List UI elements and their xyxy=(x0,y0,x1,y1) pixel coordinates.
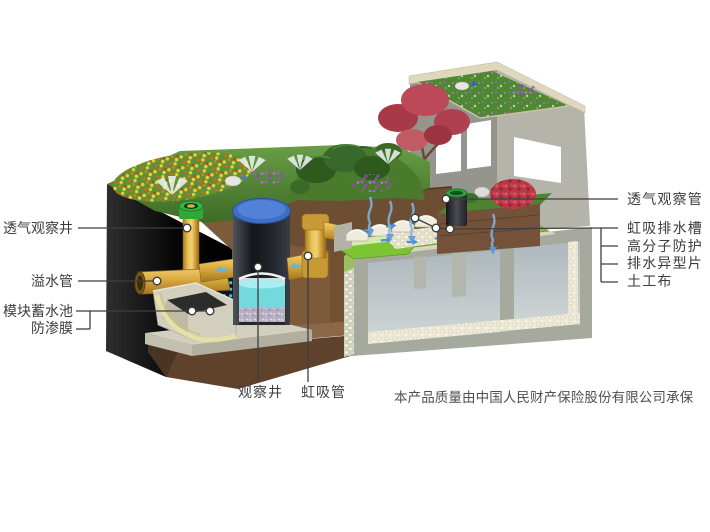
label-vent-observation-well: 透气观察井 xyxy=(3,221,73,236)
vent-observation-pipe-bin xyxy=(446,189,467,226)
observation-well-cylinder xyxy=(233,199,291,326)
label-vent-observation-pipe: 透气观察管 xyxy=(627,192,703,207)
purple-flower-patch xyxy=(351,174,393,192)
label-module-storage-tank: 模块蓄水池 xyxy=(3,304,73,319)
label-polymer-protection: 高分子防护 xyxy=(627,239,703,254)
purple-flower-patch xyxy=(250,168,286,184)
label-siphon-pipe: 虹吸管 xyxy=(300,385,347,400)
system-illustration xyxy=(0,0,710,532)
label-overflow-pipe: 溢水管 xyxy=(3,274,73,289)
insurance-footnote: 本产品质量由中国人民财产保险股份有限公司承保 xyxy=(394,386,693,406)
window-opening xyxy=(467,120,491,169)
label-geotextile: 土工布 xyxy=(627,274,673,289)
garden-rock xyxy=(225,176,241,186)
chamber-stub-column xyxy=(452,252,466,297)
chamber-stub-column xyxy=(414,256,426,289)
roof-rock xyxy=(455,82,469,90)
rainwater-harvesting-diagram: 透气观察井 溢水管 模块蓄水池 防渗膜 透气观察管 虹吸排水槽 高分子防护 排水… xyxy=(0,0,710,532)
label-drainage-profiled-sheet: 排水异型片 xyxy=(627,256,703,271)
well-cut-window xyxy=(239,274,285,326)
label-impermeable-membrane: 防渗膜 xyxy=(3,321,73,336)
label-observation-well: 观察井 xyxy=(237,385,284,400)
roof-flower-patch xyxy=(509,84,537,96)
label-siphon-drainage-channel: 虹吸排水槽 xyxy=(627,221,703,236)
